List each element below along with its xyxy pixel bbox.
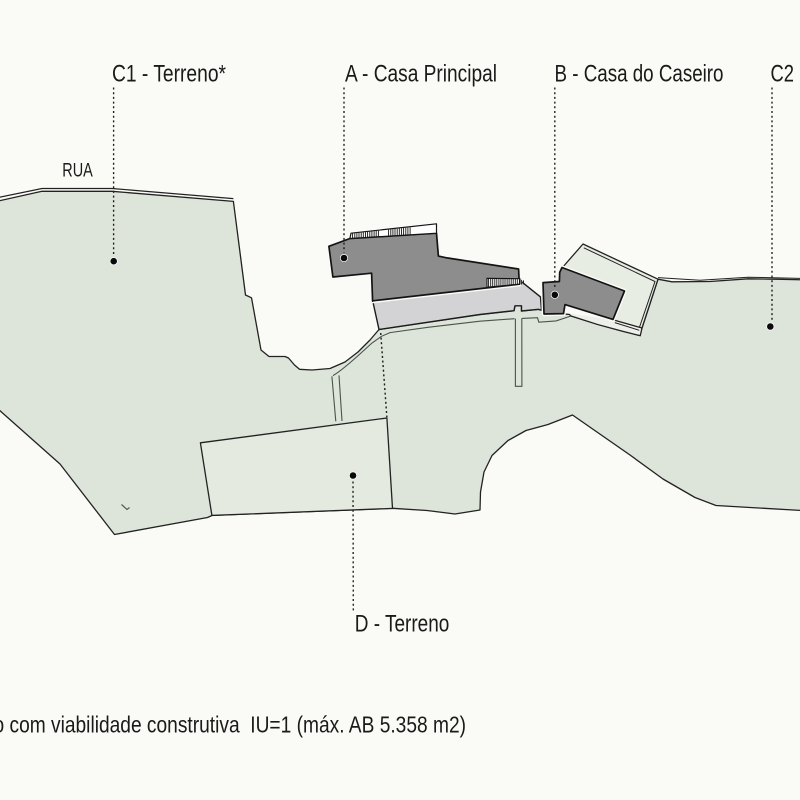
svg-text:C1 - Terreno*: C1 - Terreno* bbox=[112, 60, 226, 87]
svg-text:D - Terreno: D - Terreno bbox=[355, 610, 450, 637]
svg-text:RUA: RUA bbox=[62, 161, 93, 182]
svg-text:C2: C2 bbox=[771, 60, 795, 87]
svg-text:A - Casa Principal: A - Casa Principal bbox=[345, 60, 497, 87]
svg-text:o com viabilidade construtiva: o com viabilidade construtiva IU=1 (máx.… bbox=[0, 712, 466, 738]
svg-text:B - Casa do Caseiro: B - Casa do Caseiro bbox=[555, 60, 724, 87]
